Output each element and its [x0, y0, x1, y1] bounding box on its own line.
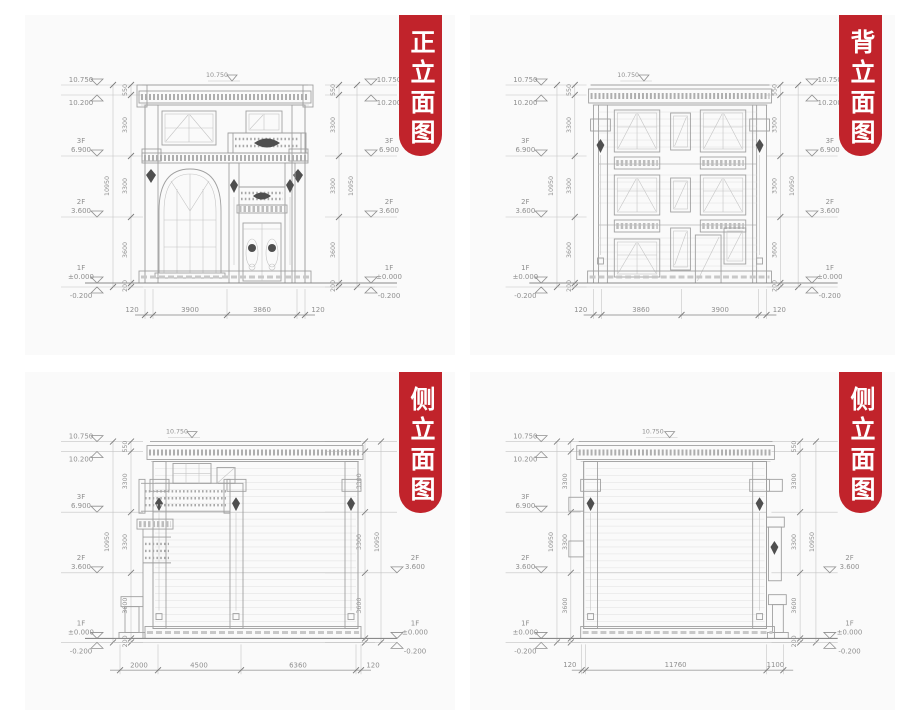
- svg-text:±0.000: ±0.000: [837, 628, 863, 636]
- svg-text:3300: 3300: [122, 117, 129, 133]
- svg-text:3F: 3F: [77, 137, 85, 145]
- svg-text:-0.200: -0.200: [514, 292, 536, 300]
- svg-text:4500: 4500: [190, 661, 208, 669]
- svg-text:3600: 3600: [122, 242, 129, 258]
- windows-2f: [614, 175, 745, 215]
- svg-text:10.750: 10.750: [642, 429, 664, 436]
- svg-text:3F: 3F: [521, 493, 529, 501]
- svg-text:2F: 2F: [411, 554, 419, 562]
- right-porch-assembly: [767, 479, 789, 638]
- svg-text:3600: 3600: [771, 242, 778, 258]
- svg-text:3.600: 3.600: [405, 563, 425, 571]
- svg-text:3300: 3300: [122, 473, 129, 489]
- svg-text:120: 120: [311, 306, 324, 314]
- svg-text:10.200: 10.200: [513, 455, 537, 463]
- svg-text:-0.200: -0.200: [514, 647, 536, 655]
- svg-text:3F: 3F: [521, 137, 529, 145]
- svg-text:3300: 3300: [566, 117, 573, 133]
- shield-ornament: [230, 179, 294, 193]
- svg-text:3600: 3600: [566, 242, 573, 258]
- svg-text:1F: 1F: [845, 619, 853, 627]
- svg-text:2000: 2000: [130, 661, 148, 669]
- svg-text:±0.000: ±0.000: [376, 273, 402, 281]
- svg-text:10.750: 10.750: [206, 72, 228, 79]
- svg-text:-0.200: -0.200: [70, 647, 93, 655]
- svg-text:2F: 2F: [521, 554, 529, 562]
- entry-door: [243, 223, 281, 281]
- svg-text:10950: 10950: [789, 176, 796, 196]
- svg-text:±0.000: ±0.000: [68, 273, 94, 281]
- svg-text:120: 120: [563, 661, 576, 669]
- svg-text:3.600: 3.600: [71, 207, 91, 215]
- bottom-dimensions: 2000 4500 6360 120: [110, 644, 380, 674]
- banner-side-elevation-a: 侧立面图: [399, 372, 442, 513]
- svg-text:10.750: 10.750: [69, 76, 94, 84]
- svg-text:3.600: 3.600: [71, 563, 91, 571]
- panel-side-elevation-b: 10950 3300 3300 3600 10950 550 3300 3300…: [470, 372, 895, 710]
- svg-text:3300: 3300: [771, 117, 778, 133]
- svg-text:200: 200: [566, 280, 573, 292]
- svg-text:1F: 1F: [826, 264, 834, 272]
- dimension-scaffold: 10950 3300 3300 3600 10950 550 3300 3300…: [506, 433, 863, 656]
- svg-text:3F: 3F: [77, 493, 85, 501]
- svg-text:3300: 3300: [562, 473, 569, 489]
- shield-ornament: [587, 497, 764, 511]
- svg-text:10.750: 10.750: [69, 433, 93, 441]
- svg-text:6360: 6360: [289, 661, 307, 669]
- svg-text:3300: 3300: [356, 534, 363, 550]
- svg-text:3860: 3860: [632, 306, 650, 314]
- svg-text:3600: 3600: [562, 598, 569, 614]
- svg-text:3600: 3600: [791, 598, 798, 614]
- svg-text:10950: 10950: [548, 532, 555, 552]
- svg-text:550: 550: [566, 84, 573, 96]
- svg-text:3300: 3300: [122, 534, 129, 550]
- svg-text:3300: 3300: [356, 473, 363, 489]
- svg-text:3900: 3900: [711, 306, 729, 314]
- banner-side-elevation-b: 侧立面图: [839, 372, 882, 513]
- svg-text:3300: 3300: [771, 178, 778, 194]
- banner-back-elevation: 背立面图: [839, 15, 882, 156]
- level-labels-right: 2F 3.600 1F ±0.000 -0.200: [402, 554, 428, 655]
- panel-back-elevation: 10950 550 3300 3300 3600 200 10950 550 3…: [470, 15, 895, 355]
- svg-text:10950: 10950: [809, 532, 816, 552]
- svg-text:120: 120: [366, 661, 379, 669]
- svg-text:1100: 1100: [767, 661, 785, 669]
- window-3f-left: [162, 111, 216, 145]
- svg-text:-0.200: -0.200: [378, 292, 401, 300]
- svg-text:3F: 3F: [385, 137, 393, 145]
- svg-text:3300: 3300: [330, 178, 337, 194]
- side-elevation-a-drawing: 10950 550 3300 3300 3600 200 10950 3300 …: [25, 372, 455, 710]
- svg-text:2F: 2F: [521, 198, 529, 206]
- svg-text:10.750: 10.750: [377, 76, 402, 84]
- svg-text:6.900: 6.900: [820, 146, 840, 154]
- svg-text:3300: 3300: [122, 178, 129, 194]
- svg-text:6.900: 6.900: [379, 146, 399, 154]
- svg-text:550: 550: [122, 441, 129, 453]
- svg-text:2F: 2F: [385, 198, 393, 206]
- svg-text:3300: 3300: [566, 178, 573, 194]
- svg-text:6.900: 6.900: [515, 146, 535, 154]
- svg-text:±0.000: ±0.000: [817, 273, 843, 281]
- svg-text:10950: 10950: [548, 176, 555, 196]
- dimension-scaffold: 10950 550 3300 3300 3600 200 10950 3300 …: [61, 433, 428, 656]
- windows-1f: [614, 228, 745, 277]
- svg-text:±0.000: ±0.000: [402, 628, 428, 636]
- banner-front-elevation: 正立面图: [399, 15, 442, 156]
- svg-text:1F: 1F: [411, 620, 419, 628]
- svg-text:-0.200: -0.200: [819, 292, 841, 300]
- balcony-2f: [237, 187, 287, 213]
- svg-text:120: 120: [125, 306, 138, 314]
- panel-side-elevation-a: 10950 550 3300 3300 3600 200 10950 3300 …: [25, 372, 455, 710]
- svg-text:3300: 3300: [791, 534, 798, 550]
- svg-text:3.600: 3.600: [515, 563, 535, 571]
- svg-text:3300: 3300: [791, 473, 798, 489]
- shield-ornament: [155, 497, 355, 511]
- bottom-dimensions: 120 3900 3860 120: [125, 289, 324, 319]
- svg-text:3F: 3F: [826, 137, 834, 145]
- svg-text:2F: 2F: [845, 554, 853, 562]
- svg-text:-0.200: -0.200: [404, 647, 427, 655]
- svg-text:550: 550: [330, 84, 337, 96]
- level-labels-left: 10.750 10.200 3F 6.900 2F 3.600 1F ±0.00…: [513, 433, 539, 656]
- svg-text:1F: 1F: [77, 264, 85, 272]
- balcony-3f: [228, 133, 306, 153]
- svg-text:3.600: 3.600: [515, 207, 535, 215]
- svg-text:10950: 10950: [374, 532, 381, 552]
- dimension-scaffold: 10950 550 3300 3300 3600 200 10950 550 3…: [506, 76, 843, 300]
- svg-text:6.900: 6.900: [515, 502, 535, 510]
- svg-text:6.900: 6.900: [71, 146, 91, 154]
- svg-text:3.600: 3.600: [820, 207, 840, 215]
- panel-front-elevation: 10950 550 3300 3300 3600 200 10950 550 3…: [25, 15, 455, 355]
- side-facade-a: 10.750: [85, 429, 397, 643]
- arched-window: [155, 169, 225, 278]
- svg-text:10950: 10950: [104, 532, 111, 552]
- svg-text:3600: 3600: [330, 242, 337, 258]
- svg-text:10.750: 10.750: [513, 76, 537, 84]
- dimension-scaffold: 10950 550 3300 3300 3600 200 10950 550 3…: [61, 76, 402, 300]
- svg-text:2F: 2F: [77, 198, 85, 206]
- svg-text:200: 200: [122, 280, 129, 292]
- svg-text:120: 120: [574, 306, 587, 314]
- svg-text:10.750: 10.750: [617, 72, 639, 79]
- lower-balcony: [137, 519, 173, 638]
- svg-text:-0.200: -0.200: [70, 292, 93, 300]
- svg-text:200: 200: [791, 635, 798, 647]
- svg-text:200: 200: [122, 635, 129, 647]
- svg-text:3600: 3600: [122, 598, 129, 614]
- svg-text:10.200: 10.200: [69, 99, 94, 107]
- svg-text:10950: 10950: [348, 176, 355, 196]
- svg-text:1F: 1F: [77, 620, 85, 628]
- level-labels-left: 10.750 10.200 3F 6.900 2F 3.600 1F ±0.00…: [68, 76, 94, 300]
- svg-text:11760: 11760: [665, 661, 687, 669]
- svg-text:200: 200: [330, 280, 337, 292]
- window-3f-right: [246, 111, 282, 133]
- svg-text:120: 120: [773, 306, 786, 314]
- svg-text:1F: 1F: [521, 619, 529, 627]
- svg-text:±0.000: ±0.000: [513, 273, 539, 281]
- svg-text:3.600: 3.600: [840, 563, 860, 571]
- side-elevation-b-drawing: 10950 3300 3300 3600 10950 550 3300 3300…: [470, 372, 895, 710]
- svg-text:550: 550: [122, 84, 129, 96]
- bottom-dimensions: 120 3860 3900 120: [574, 289, 786, 319]
- windows-3f: [614, 110, 745, 152]
- svg-text:2F: 2F: [826, 198, 834, 206]
- svg-text:10.200: 10.200: [69, 455, 93, 463]
- svg-text:-0.200: -0.200: [838, 647, 860, 655]
- level-labels-left: 10.750 10.200 3F 6.900 2F 3.600 1F ±0.00…: [68, 433, 94, 656]
- level-labels-right: 2F 3.600 1F ±0.000 -0.200: [837, 554, 863, 655]
- svg-text:3600: 3600: [356, 598, 363, 614]
- back-elevation-drawing: 10950 550 3300 3300 3600 200 10950 550 3…: [470, 15, 895, 355]
- svg-text:2F: 2F: [77, 554, 85, 562]
- svg-text:10.750: 10.750: [166, 429, 188, 436]
- svg-text:6.900: 6.900: [71, 502, 91, 510]
- svg-text:10.750: 10.750: [513, 433, 537, 441]
- svg-text:10950: 10950: [104, 176, 111, 196]
- svg-text:3300: 3300: [330, 117, 337, 133]
- svg-text:±0.000: ±0.000: [68, 628, 94, 636]
- shield-ornament: [770, 541, 778, 555]
- svg-text:3.600: 3.600: [379, 207, 399, 215]
- svg-text:1F: 1F: [521, 264, 529, 272]
- svg-text:10.200: 10.200: [377, 99, 402, 107]
- svg-text:550: 550: [791, 441, 798, 453]
- bottom-dimensions: 120 11760 1100: [563, 644, 793, 674]
- svg-text:3300: 3300: [562, 534, 569, 550]
- drawing-sheet: 10950 550 3300 3300 3600 200 10950 550 3…: [0, 0, 910, 725]
- svg-text:±0.000: ±0.000: [513, 628, 539, 636]
- level-labels-left: 10.750 10.200 3F 6.900 2F 3.600 1F ±0.00…: [513, 76, 539, 300]
- svg-text:550: 550: [771, 84, 778, 96]
- front-elevation-drawing: 10950 550 3300 3300 3600 200 10950 550 3…: [25, 15, 455, 355]
- svg-text:200: 200: [771, 280, 778, 292]
- svg-text:3860: 3860: [253, 306, 271, 314]
- svg-text:1F: 1F: [385, 264, 393, 272]
- svg-text:10.200: 10.200: [513, 99, 537, 107]
- svg-text:3900: 3900: [181, 306, 199, 314]
